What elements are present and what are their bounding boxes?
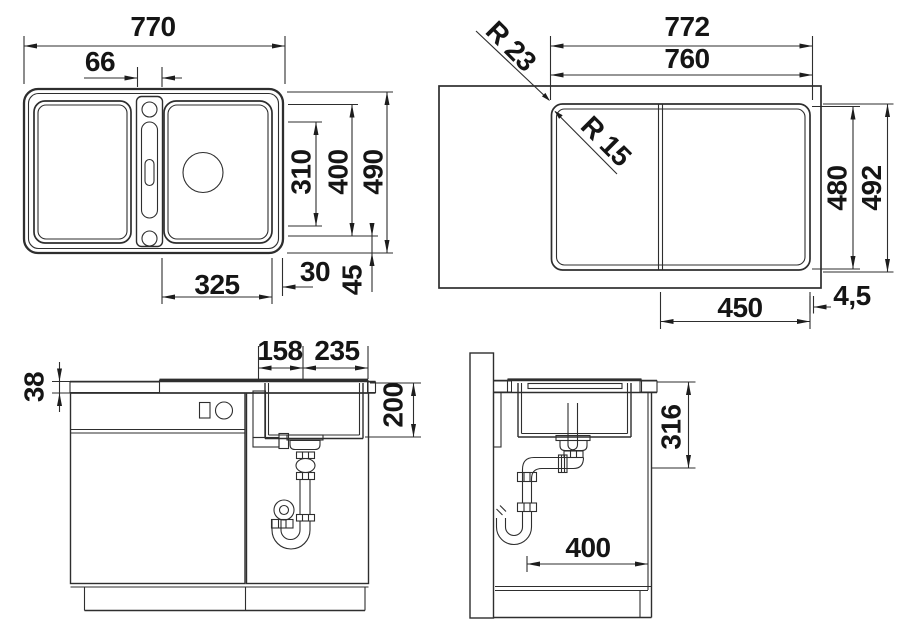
- drain-trap-front: [272, 435, 324, 549]
- dim-label-edge-gap: 4,5: [833, 280, 870, 311]
- worktop-outline: [439, 86, 821, 288]
- dim-label-cutout-overall-width: 772: [664, 11, 709, 42]
- dim-label-cutout-width: 760: [664, 43, 709, 74]
- view-cutout-plan: [439, 31, 821, 288]
- control-switch: [200, 403, 211, 419]
- dim-label-drain-offset-right: 235: [314, 335, 359, 366]
- dim-label-drain-offset-left: 158: [257, 335, 302, 366]
- dim-label-bowl-section-width: 450: [717, 292, 762, 323]
- dim-label-side-gap: 30: [300, 256, 330, 287]
- left-cabinet: [71, 393, 246, 584]
- view-plan-sink: [24, 89, 283, 253]
- dim-label-bowl-outer-depth: 400: [323, 149, 354, 194]
- dim-label-wall-clearance: 400: [565, 532, 610, 563]
- tap-hole-top: [142, 102, 157, 117]
- drainer-bowl-inner: [38, 105, 127, 239]
- front-dimensions: [52, 346, 421, 437]
- view-front-elevation: [70, 380, 376, 611]
- worktop-hatch-left: [70, 382, 160, 393]
- dim-label-cutout-overall-depth: 492: [856, 165, 887, 210]
- plinth-front: [71, 587, 369, 611]
- sink-dimension-diagram: 770 66 310 400 490 325 30 45: [0, 0, 916, 630]
- bowl-section-side: [518, 383, 631, 437]
- ledge-slot: [145, 160, 154, 186]
- dim-label-worktop-thickness: 38: [19, 372, 50, 402]
- drain-hole: [183, 153, 223, 193]
- dim-label-bowl-depth: 200: [378, 382, 409, 427]
- wall-batten: [494, 393, 502, 448]
- dim-label-front-gap: 45: [337, 265, 368, 295]
- tap-hole-bottom: [142, 231, 157, 246]
- dim-label-ledge-width: 66: [85, 46, 115, 77]
- dim-label-cutout-depth: 480: [822, 165, 853, 210]
- dim-label-overall-depth: 490: [358, 149, 389, 194]
- worktop-hatch-right: [368, 382, 376, 393]
- tap-ledge: [137, 97, 163, 247]
- worktop-hatch-front: [640, 381, 657, 392]
- dim-label-overall-width: 770: [130, 11, 175, 42]
- dim-label-inner-radius: R 15: [575, 110, 637, 172]
- drain-funnel-side: [556, 392, 590, 458]
- dim-label-bowl-width: 325: [194, 269, 239, 300]
- dim-label-outer-radius: R 23: [480, 15, 542, 77]
- worktop-hatch-back: [494, 381, 512, 392]
- main-bowl-outer: [164, 101, 272, 243]
- wall-section: [470, 353, 494, 618]
- dim-label-bowl-inner-depth: 310: [286, 149, 317, 194]
- view-side-elevation: [470, 353, 657, 618]
- ledge-recess: [142, 122, 158, 218]
- control-knob: [216, 402, 233, 419]
- bowl-section-front: [265, 383, 363, 439]
- drainer-bowl-outer: [34, 101, 131, 243]
- technical-drawing-sheet: 770 66 310 400 490 325 30 45: [0, 0, 916, 630]
- dim-label-underbowl-clearance: 316: [656, 404, 687, 449]
- rim-carrier: [528, 384, 622, 389]
